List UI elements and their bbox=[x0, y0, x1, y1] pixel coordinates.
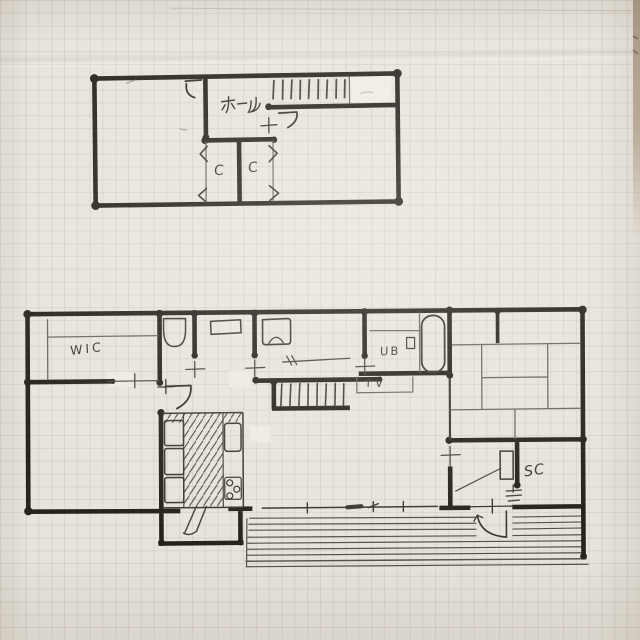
door-swing-hall-stairs bbox=[261, 112, 298, 133]
kitchen-appliances bbox=[164, 421, 183, 503]
kitchen-sink bbox=[224, 423, 241, 451]
floor1-walls bbox=[27, 309, 585, 560]
tatami-mat-lines bbox=[450, 343, 581, 439]
laundry-fixture bbox=[263, 319, 291, 345]
annex-strokes bbox=[183, 506, 206, 534]
pencil-marks bbox=[126, 80, 187, 131]
wood-deck-lines bbox=[245, 516, 588, 567]
closet-left-label: C bbox=[214, 163, 225, 180]
shoe-cabinet bbox=[500, 451, 513, 479]
photographed-floorplan-sketch: WIC C C UB TV SC bbox=[0, 0, 640, 640]
handrail-line bbox=[283, 355, 350, 365]
unit-bath-label: UB bbox=[380, 344, 401, 359]
bath-control-box bbox=[407, 337, 415, 348]
vanity-counter bbox=[211, 320, 242, 335]
kitchen-stove bbox=[225, 477, 242, 499]
door-swing-hall-nw bbox=[185, 80, 201, 98]
bathtub bbox=[422, 315, 445, 372]
unit-bath-interior-lines bbox=[369, 311, 419, 372]
toilet-fixture bbox=[164, 318, 186, 346]
closet-right-label: C bbox=[248, 159, 258, 176]
floorplan-drawing bbox=[0, 0, 640, 640]
staircase-2f bbox=[273, 79, 345, 99]
floor2-plan bbox=[90, 69, 403, 210]
tv-label: TV bbox=[365, 378, 387, 390]
edge-specks bbox=[633, 36, 638, 54]
floor1-plan bbox=[23, 306, 588, 568]
staircase-1f bbox=[281, 383, 344, 406]
correction-tape-patch bbox=[350, 76, 391, 102]
south-opening bbox=[262, 499, 513, 514]
genkan-step-diagonal bbox=[455, 468, 501, 491]
hall-label-glyphs bbox=[222, 96, 261, 112]
entry-door-swing bbox=[474, 511, 507, 537]
shoe-closet-label: SC bbox=[523, 462, 546, 481]
